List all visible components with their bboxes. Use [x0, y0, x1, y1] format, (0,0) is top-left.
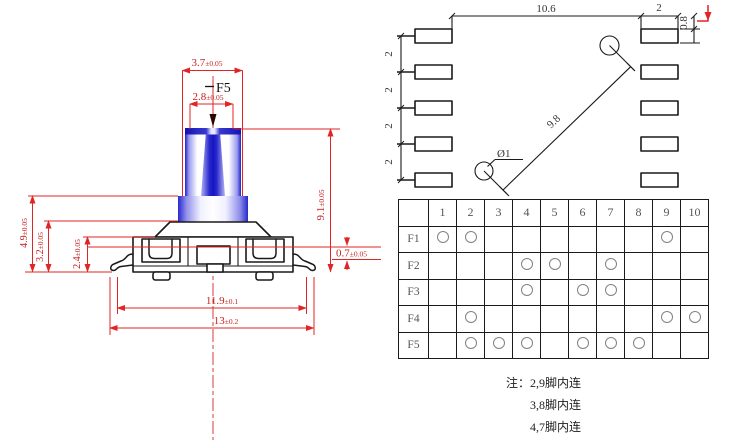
connection-circle: [437, 231, 449, 243]
pin-cell: [513, 279, 541, 306]
pin-cell: [429, 332, 457, 359]
dim-label-lead-span: 13±0.2: [214, 315, 239, 327]
left-lead: [111, 254, 133, 271]
dim-label-stem-height: 9.1±0.05: [315, 189, 327, 220]
connection-circle: [605, 284, 617, 296]
pin-cell: [597, 306, 625, 333]
pin-cell: [625, 226, 653, 253]
dim-label-stem-width: 2.8±0.05: [193, 91, 224, 103]
connection-circle: [465, 311, 477, 323]
pin-cell: [429, 279, 457, 306]
pin-cell: [513, 332, 541, 359]
dim-label-total-height: 4.9±0.05: [19, 218, 30, 248]
pin-cell: [569, 332, 597, 359]
function-row-label: F2: [399, 253, 429, 280]
function-row-label: F3: [399, 279, 429, 306]
pin-table-row: F5: [399, 332, 709, 359]
pin-cell: [681, 253, 709, 280]
connection-circle: [521, 284, 533, 296]
right-lead: [293, 254, 315, 271]
pin-cell: [485, 226, 513, 253]
pin-column-header: 6: [569, 200, 597, 227]
pin-column-header: 1: [429, 200, 457, 227]
pin-cell: [681, 306, 709, 333]
drawing-sheet: 3.7±0.05 F5 2.8±0.05 9.1±0.05 4.9±0.05: [0, 0, 744, 441]
dim-label-body-height: 2.4±0.05: [72, 239, 83, 269]
pin-cell: [541, 306, 569, 333]
pin-cell: [541, 253, 569, 280]
dim-label-standoff: 0.7±0.05: [336, 248, 367, 260]
center-post: [197, 246, 230, 264]
notes-block: 注：2,9脚内连 3,8脚内连 4,7脚内连: [506, 372, 581, 438]
pin-cell: [653, 279, 681, 306]
function-row-label: F1: [399, 226, 429, 253]
pin-cell: [429, 226, 457, 253]
pin-cell: [597, 226, 625, 253]
note-line-3: 4,7脚内连: [530, 416, 581, 438]
pin-cell: [429, 306, 457, 333]
pin-cell: [485, 253, 513, 280]
pin-table: 12345678910F1F2F3F4F5: [398, 199, 709, 359]
pin-column-header: 7: [597, 200, 625, 227]
connection-circle: [689, 311, 701, 323]
footprint-view: 2 2 2 2 10.6 2 0.8: [383, 2, 712, 196]
pin-cell: [541, 332, 569, 359]
pin-table-corner: [399, 200, 429, 227]
pin-table-row: F3: [399, 279, 709, 306]
pin-cell: [513, 226, 541, 253]
side-view: 3.7±0.05 F5 2.8±0.05 9.1±0.05 4.9±0.05: [19, 57, 381, 440]
pin-cell: [485, 279, 513, 306]
pin-cell: [457, 332, 485, 359]
pin-column-header: 8: [625, 200, 653, 227]
pin-cell: [569, 306, 597, 333]
function-row-label: F5: [399, 332, 429, 359]
dim-stem-width: 2.8±0.05: [190, 91, 233, 129]
pin-column-header: 2: [457, 200, 485, 227]
locating-holes: 9.8 Ø1: [475, 36, 635, 196]
dim-label-pad-width: 2: [656, 2, 662, 14]
function-row-label: F4: [399, 306, 429, 333]
pin-cell: [625, 306, 653, 333]
note-line-2: 3,8脚内连: [530, 394, 581, 416]
callout-arrow: [210, 114, 217, 127]
connection-circle: [577, 284, 589, 296]
solder-pads: [415, 29, 678, 187]
pin-cell: [429, 253, 457, 280]
datum-mark: [697, 5, 712, 21]
pin-cell: [513, 306, 541, 333]
pin-column-header: 9: [653, 200, 681, 227]
pin-table-row: F1: [399, 226, 709, 253]
dim-label-hole-diameter: Ø1: [497, 148, 510, 160]
pin-cell: [597, 279, 625, 306]
switch-housing: [111, 222, 316, 280]
note-prefix: 注：: [506, 376, 530, 390]
bottom-tab-right: [256, 272, 273, 280]
pin-cell: [625, 253, 653, 280]
pin-cell: [681, 279, 709, 306]
pin-cell: [625, 332, 653, 359]
pin-cell: [569, 279, 597, 306]
pin-cell: [681, 332, 709, 359]
pin-cell: [597, 253, 625, 280]
dim-label-body-width: 11.9±0.1: [206, 295, 239, 307]
pin-cell: [541, 279, 569, 306]
pin-cell: [457, 306, 485, 333]
connection-circle: [465, 231, 477, 243]
pin-column-header: 5: [541, 200, 569, 227]
pin-cell: [569, 226, 597, 253]
actuator-stem: [178, 128, 248, 222]
connection-circle: [633, 337, 645, 349]
pin-cell: [457, 253, 485, 280]
dim-label-hole-distance: 9.8: [545, 112, 564, 131]
connection-circle: [605, 258, 617, 270]
pin-cell: [541, 226, 569, 253]
pin-cell: [569, 253, 597, 280]
pin-cell: [513, 253, 541, 280]
dim-pad-height: 0.8: [678, 13, 700, 43]
pin-table-row: F2: [399, 253, 709, 280]
pin-cell: [457, 279, 485, 306]
center-notch: [207, 264, 223, 272]
connection-circle: [549, 258, 561, 270]
pin-cell: [457, 226, 485, 253]
connection-circle: [577, 337, 589, 349]
connection-circle: [465, 337, 477, 349]
dim-body-width: 11.9±0.1: [118, 277, 307, 314]
dim-label-pad-height: 0.8: [678, 16, 690, 30]
connection-circle: [661, 311, 673, 323]
bottom-tab-left: [153, 272, 170, 280]
pin-cell: [653, 332, 681, 359]
pin-table-row: F4: [399, 306, 709, 333]
pin-cell: [653, 306, 681, 333]
pin-table-container: 12345678910F1F2F3F4F5: [398, 199, 709, 359]
connection-circle: [521, 337, 533, 349]
dim-label-cap-width: 3.7±0.05: [192, 57, 223, 69]
pin-column-header: 3: [485, 200, 513, 227]
stem-base: [178, 196, 248, 222]
connection-circle: [661, 231, 673, 243]
pin-cell: [485, 332, 513, 359]
note-line-1: 注：2,9脚内连: [506, 372, 581, 394]
pitch-label-4: 2: [383, 159, 395, 165]
connection-circle: [493, 337, 505, 349]
pin-cell: [681, 226, 709, 253]
dim-label-mid-height: 3.2±0.05: [35, 232, 46, 262]
pitch-label-1: 2: [383, 51, 395, 57]
dim-pad-gap: 10.6 2: [449, 2, 681, 29]
pitch-label-3: 2: [383, 123, 395, 129]
pin-cell: [597, 332, 625, 359]
pin-column-header: 4: [513, 200, 541, 227]
dim-label-pad-gap: 10.6: [536, 3, 556, 15]
pin-cell: [653, 253, 681, 280]
pin-cell: [625, 279, 653, 306]
pin-cell: [653, 226, 681, 253]
pin-cell: [485, 306, 513, 333]
housing-bevel: [155, 222, 271, 237]
pin-column-header: 10: [681, 200, 709, 227]
pitch-label-2: 2: [383, 87, 395, 93]
dim-pad-pitch: 2 2 2 2: [383, 33, 415, 183]
connection-circle: [521, 258, 533, 270]
connection-circle: [605, 337, 617, 349]
